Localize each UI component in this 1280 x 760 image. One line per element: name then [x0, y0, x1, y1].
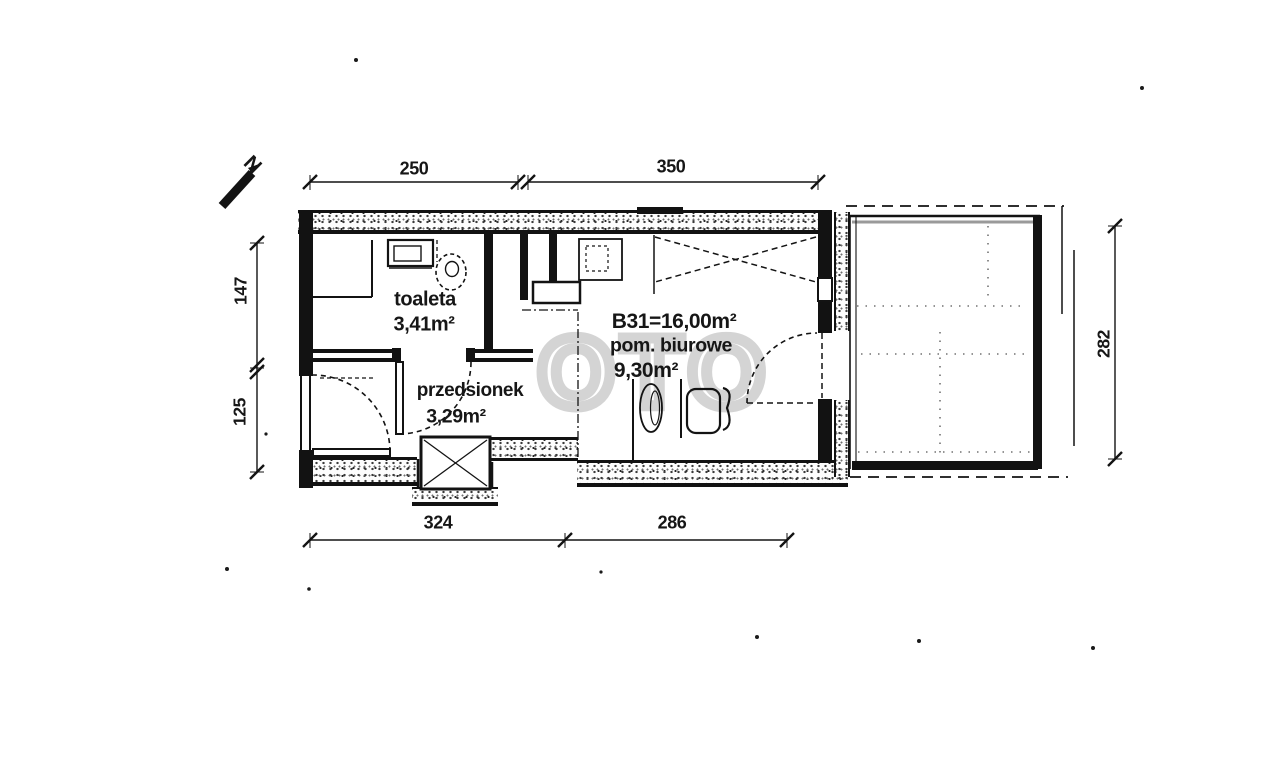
- entrance-wall-opening: [301, 376, 310, 450]
- room-label-toaleta: toaleta: [394, 289, 456, 312]
- door-entrance: [313, 375, 390, 456]
- wardrobe-icon: [654, 235, 816, 294]
- dimension-bottom-left: 324: [424, 513, 453, 534]
- balcony-window: [818, 278, 832, 301]
- unit-label-b31: B31=16,00m²: [612, 310, 737, 334]
- room-area-biurowe: 9,30m²: [614, 359, 678, 383]
- balcony: [846, 206, 1074, 477]
- dimension-left-lower: 125: [230, 398, 251, 426]
- dimension-top-left: 250: [400, 159, 429, 180]
- toilet-icon: [436, 240, 466, 290]
- cabinet-icon: [579, 239, 622, 280]
- room-area-przedsionek: 3,29m²: [426, 406, 485, 429]
- dimension-top-right: 350: [657, 157, 686, 178]
- balcony-floor-dots: [857, 226, 1030, 458]
- room-area-toaleta: 3,41m²: [394, 314, 455, 337]
- duct-box: [533, 282, 580, 303]
- dimension-balcony-height: 282: [1094, 330, 1115, 358]
- dimension-bottom-right: 286: [658, 513, 687, 534]
- room-label-biurowe: pom. biurowe: [610, 335, 732, 358]
- floor-plan-canvas: OTO: [0, 0, 1280, 760]
- ventilation-shaft: [418, 437, 492, 489]
- sink-icon: [388, 240, 433, 268]
- dimension-left-upper: 147: [231, 277, 252, 305]
- room-label-przedsionek: przedsionek: [417, 380, 523, 402]
- shower-icon: [313, 240, 376, 378]
